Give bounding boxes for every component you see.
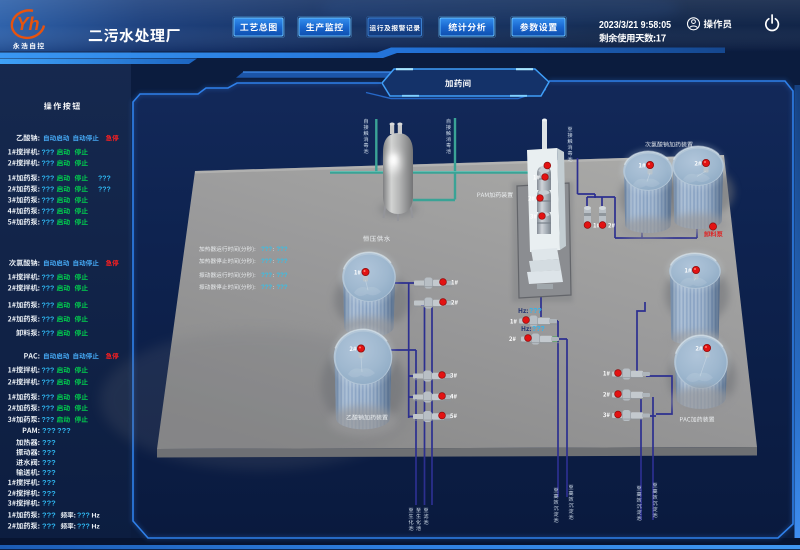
svg-text:???: ??? <box>42 426 56 435</box>
svg-text:???: ??? <box>42 395 55 402</box>
svg-text:???: ??? <box>42 187 55 194</box>
svg-text:???: ??? <box>42 368 55 375</box>
svg-text:???: ??? <box>42 198 55 205</box>
svg-text:???: ??? <box>42 317 55 324</box>
svg-text:???: ??? <box>42 209 55 216</box>
svg-text:???: ??? <box>42 499 56 508</box>
svg-text:???: ??? <box>57 426 71 435</box>
svg-text:???: ??? <box>277 273 288 279</box>
svg-text:???: ??? <box>42 303 55 310</box>
svg-text:???: ??? <box>42 522 56 531</box>
svg-text:???: ??? <box>42 511 56 520</box>
svg-text:Yh: Yh <box>17 14 40 34</box>
svg-text:Hz: Hz <box>92 524 101 531</box>
svg-text:???: ??? <box>532 326 545 333</box>
svg-text:???: ??? <box>42 176 55 183</box>
svg-text:???: ??? <box>42 331 55 338</box>
svg-text:???: ??? <box>77 524 90 531</box>
svg-text:???: ??? <box>42 220 55 227</box>
svg-text:???: ??? <box>42 489 56 498</box>
svg-text:???: ??? <box>42 286 55 293</box>
svg-text:???: ??? <box>277 259 288 265</box>
svg-text:???: ??? <box>261 273 272 279</box>
svg-text:???: ??? <box>42 161 55 168</box>
svg-text:???: ??? <box>261 285 272 291</box>
svg-text:???: ??? <box>277 247 288 253</box>
svg-text:???: ??? <box>42 275 55 282</box>
svg-text:???: ??? <box>42 448 56 457</box>
svg-text:???: ??? <box>42 150 55 157</box>
svg-text:???: ??? <box>277 285 288 291</box>
svg-text:???: ??? <box>42 406 55 413</box>
svg-text:2023/3/21 9:58:05: 2023/3/21 9:58:05 <box>599 19 671 31</box>
svg-text:???: ??? <box>98 176 111 183</box>
svg-text:???: ??? <box>42 468 56 477</box>
svg-text:???: ??? <box>98 187 111 194</box>
svg-text:???: ??? <box>42 380 55 387</box>
svg-text:???: ??? <box>42 458 56 467</box>
svg-text:???: ??? <box>77 513 90 520</box>
svg-text:???: ??? <box>42 438 56 447</box>
svg-text:???: ??? <box>42 417 55 424</box>
svg-text:???: ??? <box>529 308 542 315</box>
svg-text:???: ??? <box>261 259 272 265</box>
svg-text:???: ??? <box>261 247 272 253</box>
svg-text:???: ??? <box>42 478 56 487</box>
svg-text:Hz: Hz <box>92 513 101 520</box>
